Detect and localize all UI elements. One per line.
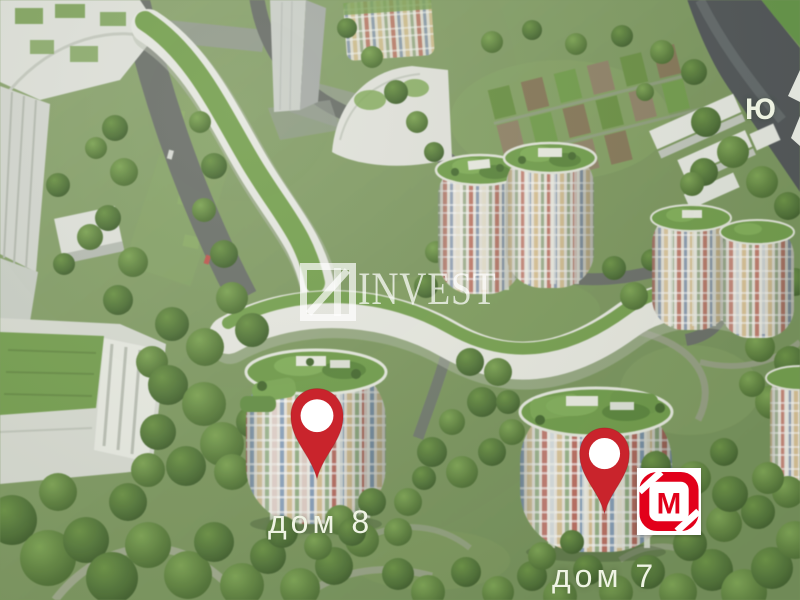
compass-south-label: Ю bbox=[745, 93, 776, 127]
map-pin-dom-8[interactable] bbox=[288, 384, 346, 484]
marker-label-dom-8: дом 8 bbox=[268, 504, 373, 541]
watermark-text: INVEST bbox=[358, 266, 496, 313]
masterplan-image: INVEST дом 8 дом 7 М Ю bbox=[0, 0, 800, 600]
marker-label-dom-7: дом 7 bbox=[552, 558, 657, 595]
map-pin-dom-7[interactable] bbox=[577, 422, 632, 520]
magnit-logo-icon: М bbox=[637, 468, 701, 535]
tower-right-a bbox=[651, 205, 731, 330]
tower-right-b bbox=[720, 220, 794, 338]
magnit-store-badge[interactable]: М bbox=[637, 468, 701, 535]
watermark: INVEST bbox=[300, 263, 531, 321]
compass-arrow-icon bbox=[786, 66, 800, 150]
magnit-letter: М bbox=[657, 487, 682, 520]
invest-logo-icon bbox=[300, 263, 356, 321]
